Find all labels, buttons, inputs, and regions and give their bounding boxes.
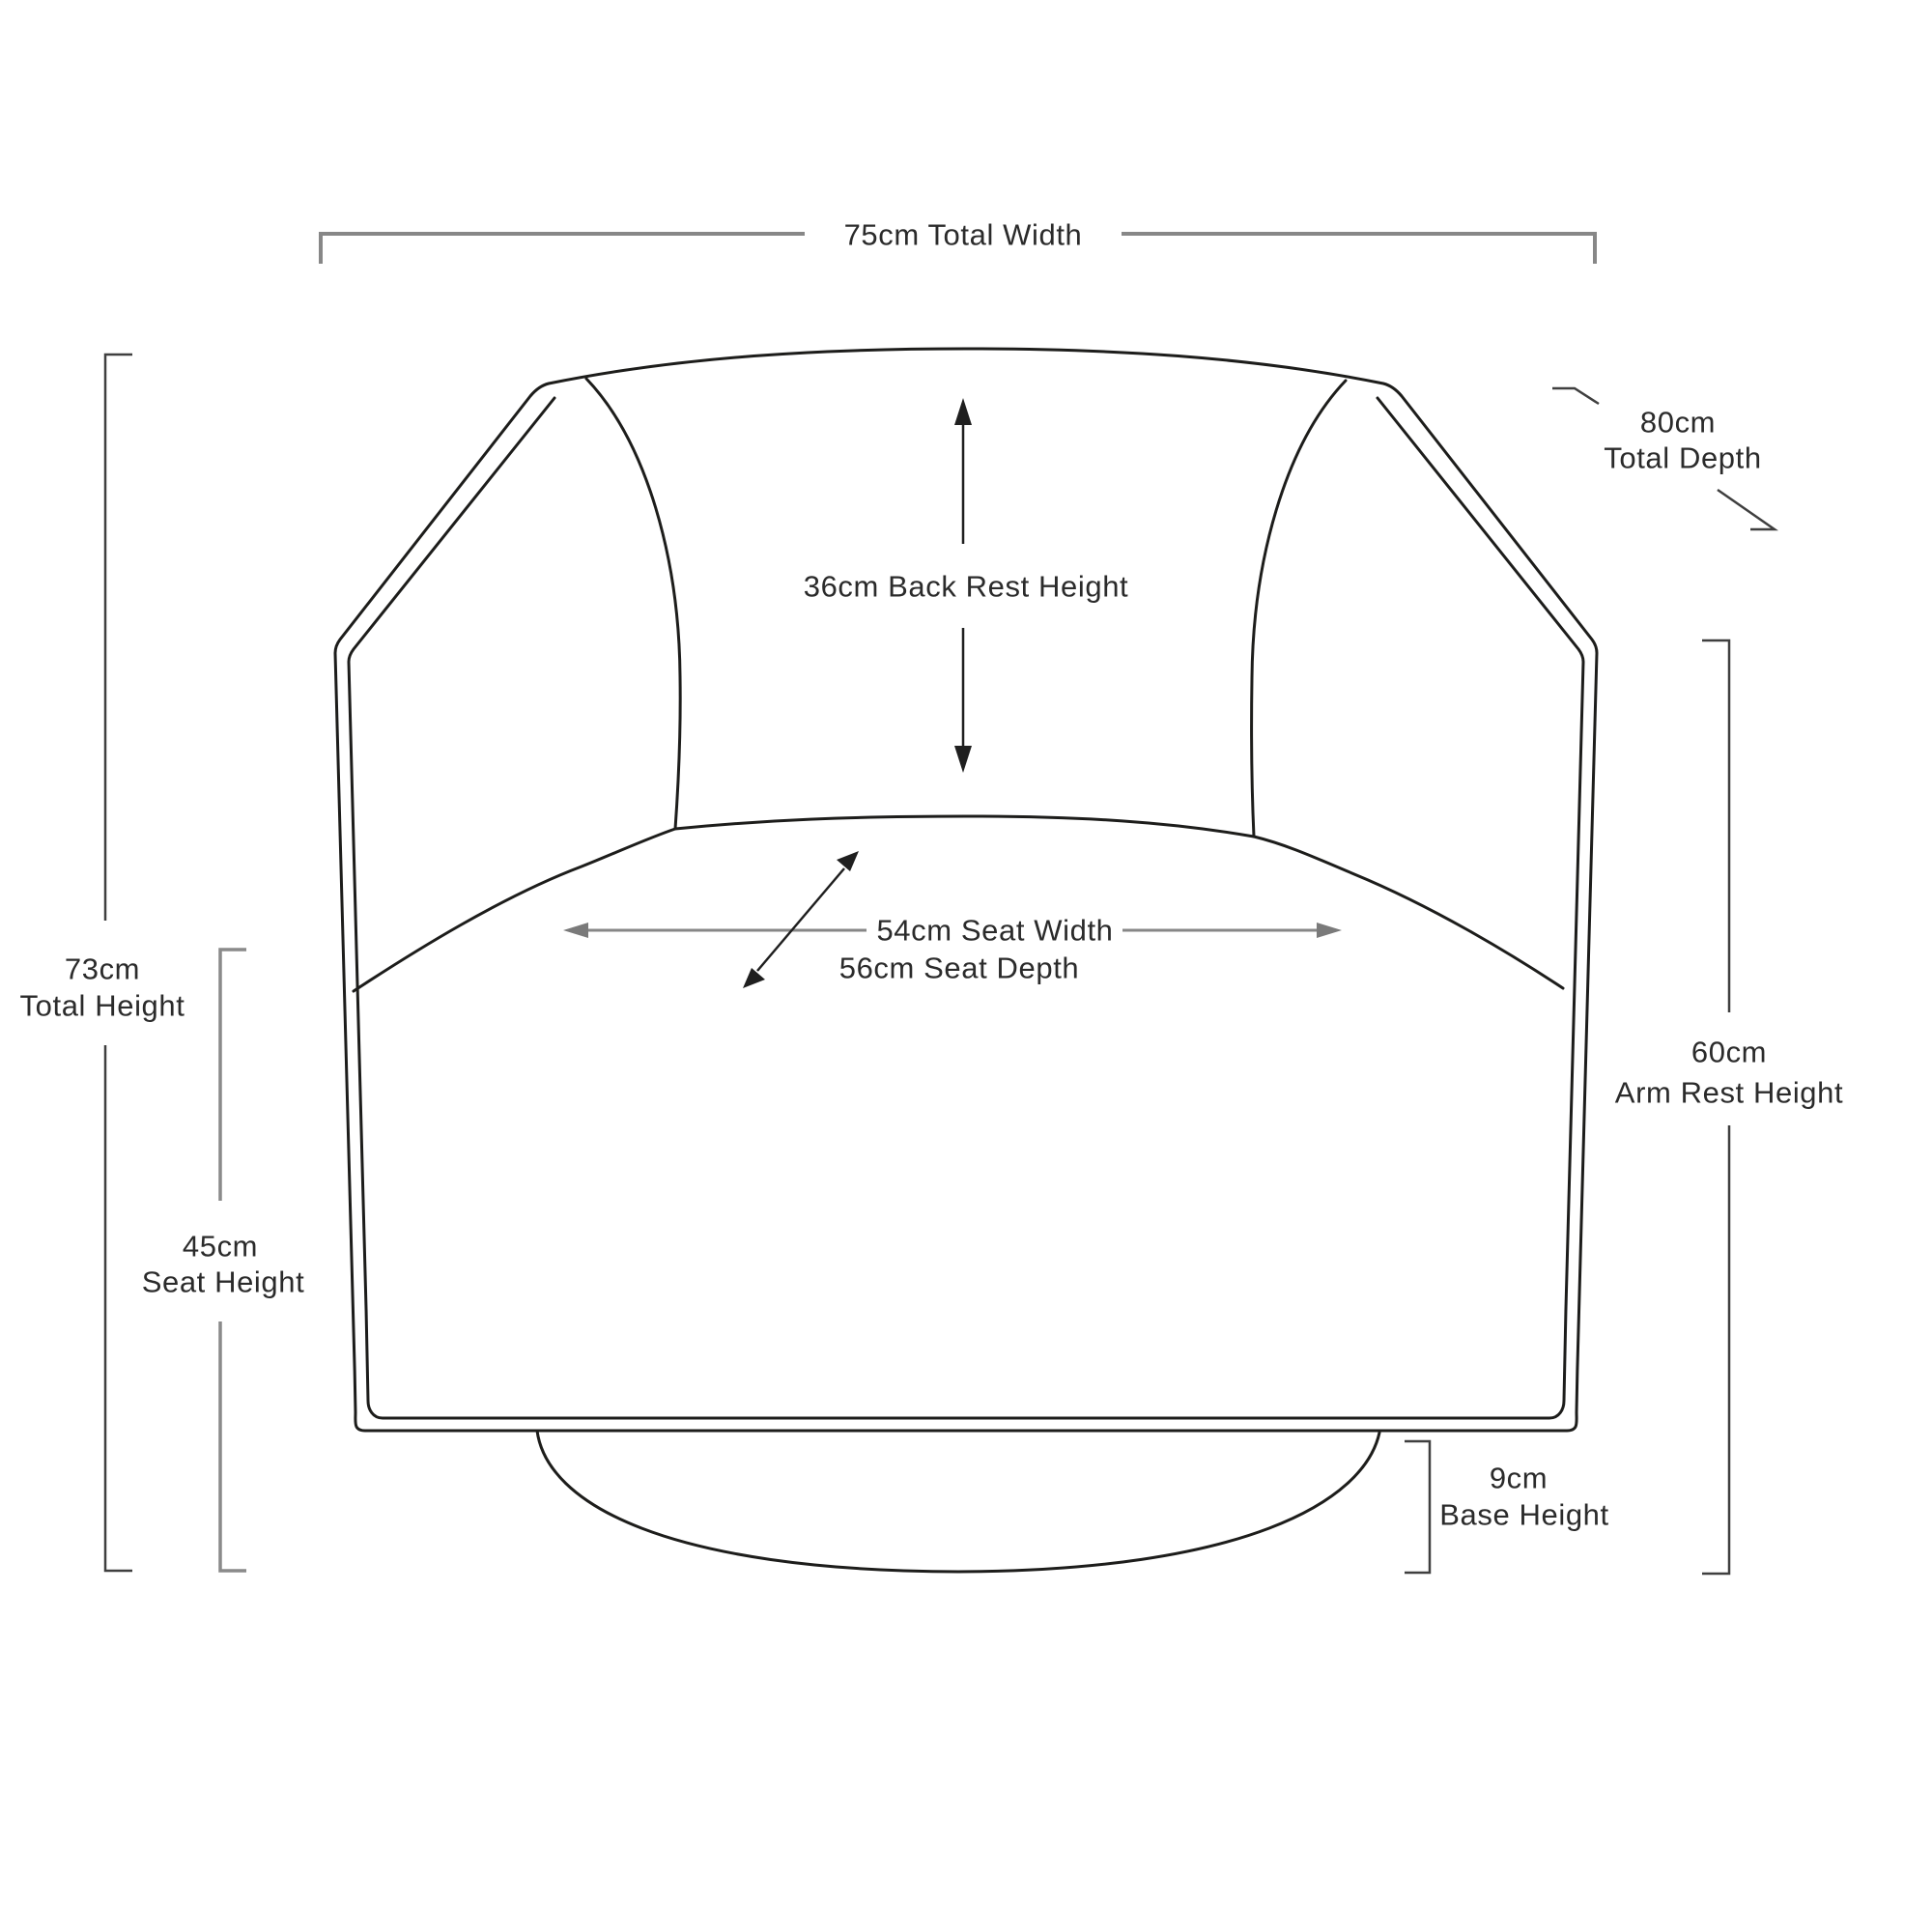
arrow-head-up	[954, 398, 972, 425]
label-base-height-value: 9cm	[1490, 1462, 1548, 1495]
label-seat-height-name: Seat Height	[142, 1265, 305, 1299]
arrow-head-upper-right	[837, 851, 859, 871]
label-total-height-name: Total Height	[20, 989, 185, 1023]
label-seat-depth: 56cm Seat Depth	[839, 952, 1080, 985]
label-arm-rest-height-value: 60cm	[1691, 1036, 1767, 1069]
dim-total-depth-leader-lower	[1718, 490, 1775, 529]
label-base-height-name: Base Height	[1439, 1498, 1608, 1532]
dimension-labels: 75cm Total Width 80cm Total Depth 36cm B…	[20, 218, 1844, 1532]
chair-right-arm-curve	[1252, 381, 1346, 837]
label-total-depth-name: Total Depth	[1604, 441, 1761, 475]
label-seat-width: 54cm Seat Width	[876, 914, 1113, 948]
arrow-head-left	[563, 923, 588, 938]
arrow-head-right	[1317, 923, 1342, 938]
label-arm-rest-height-name: Arm Rest Height	[1615, 1076, 1843, 1110]
dim-base-height-bracket	[1405, 1441, 1430, 1573]
chair-swivel-base	[537, 1431, 1379, 1572]
chair-inner-shell-line	[349, 398, 1583, 1418]
chair-left-arm-curve	[586, 379, 680, 829]
label-total-depth-value: 80cm	[1640, 406, 1716, 440]
label-total-height-value: 73cm	[65, 952, 140, 986]
arrow-head-lower-left	[743, 968, 765, 988]
armchair-dimension-drawing: 75cm Total Width 80cm Total Depth 36cm B…	[0, 0, 1932, 1932]
label-seat-height-value: 45cm	[183, 1230, 258, 1264]
label-back-rest-height: 36cm Back Rest Height	[804, 570, 1129, 604]
arrow-head-down	[954, 746, 972, 773]
label-total-width: 75cm Total Width	[844, 218, 1083, 252]
chair-outer-shell	[335, 349, 1597, 1431]
dimension-diagram-canvas: 75cm Total Width 80cm Total Depth 36cm B…	[0, 0, 1932, 1932]
dim-total-depth-leader-upper	[1552, 388, 1599, 404]
